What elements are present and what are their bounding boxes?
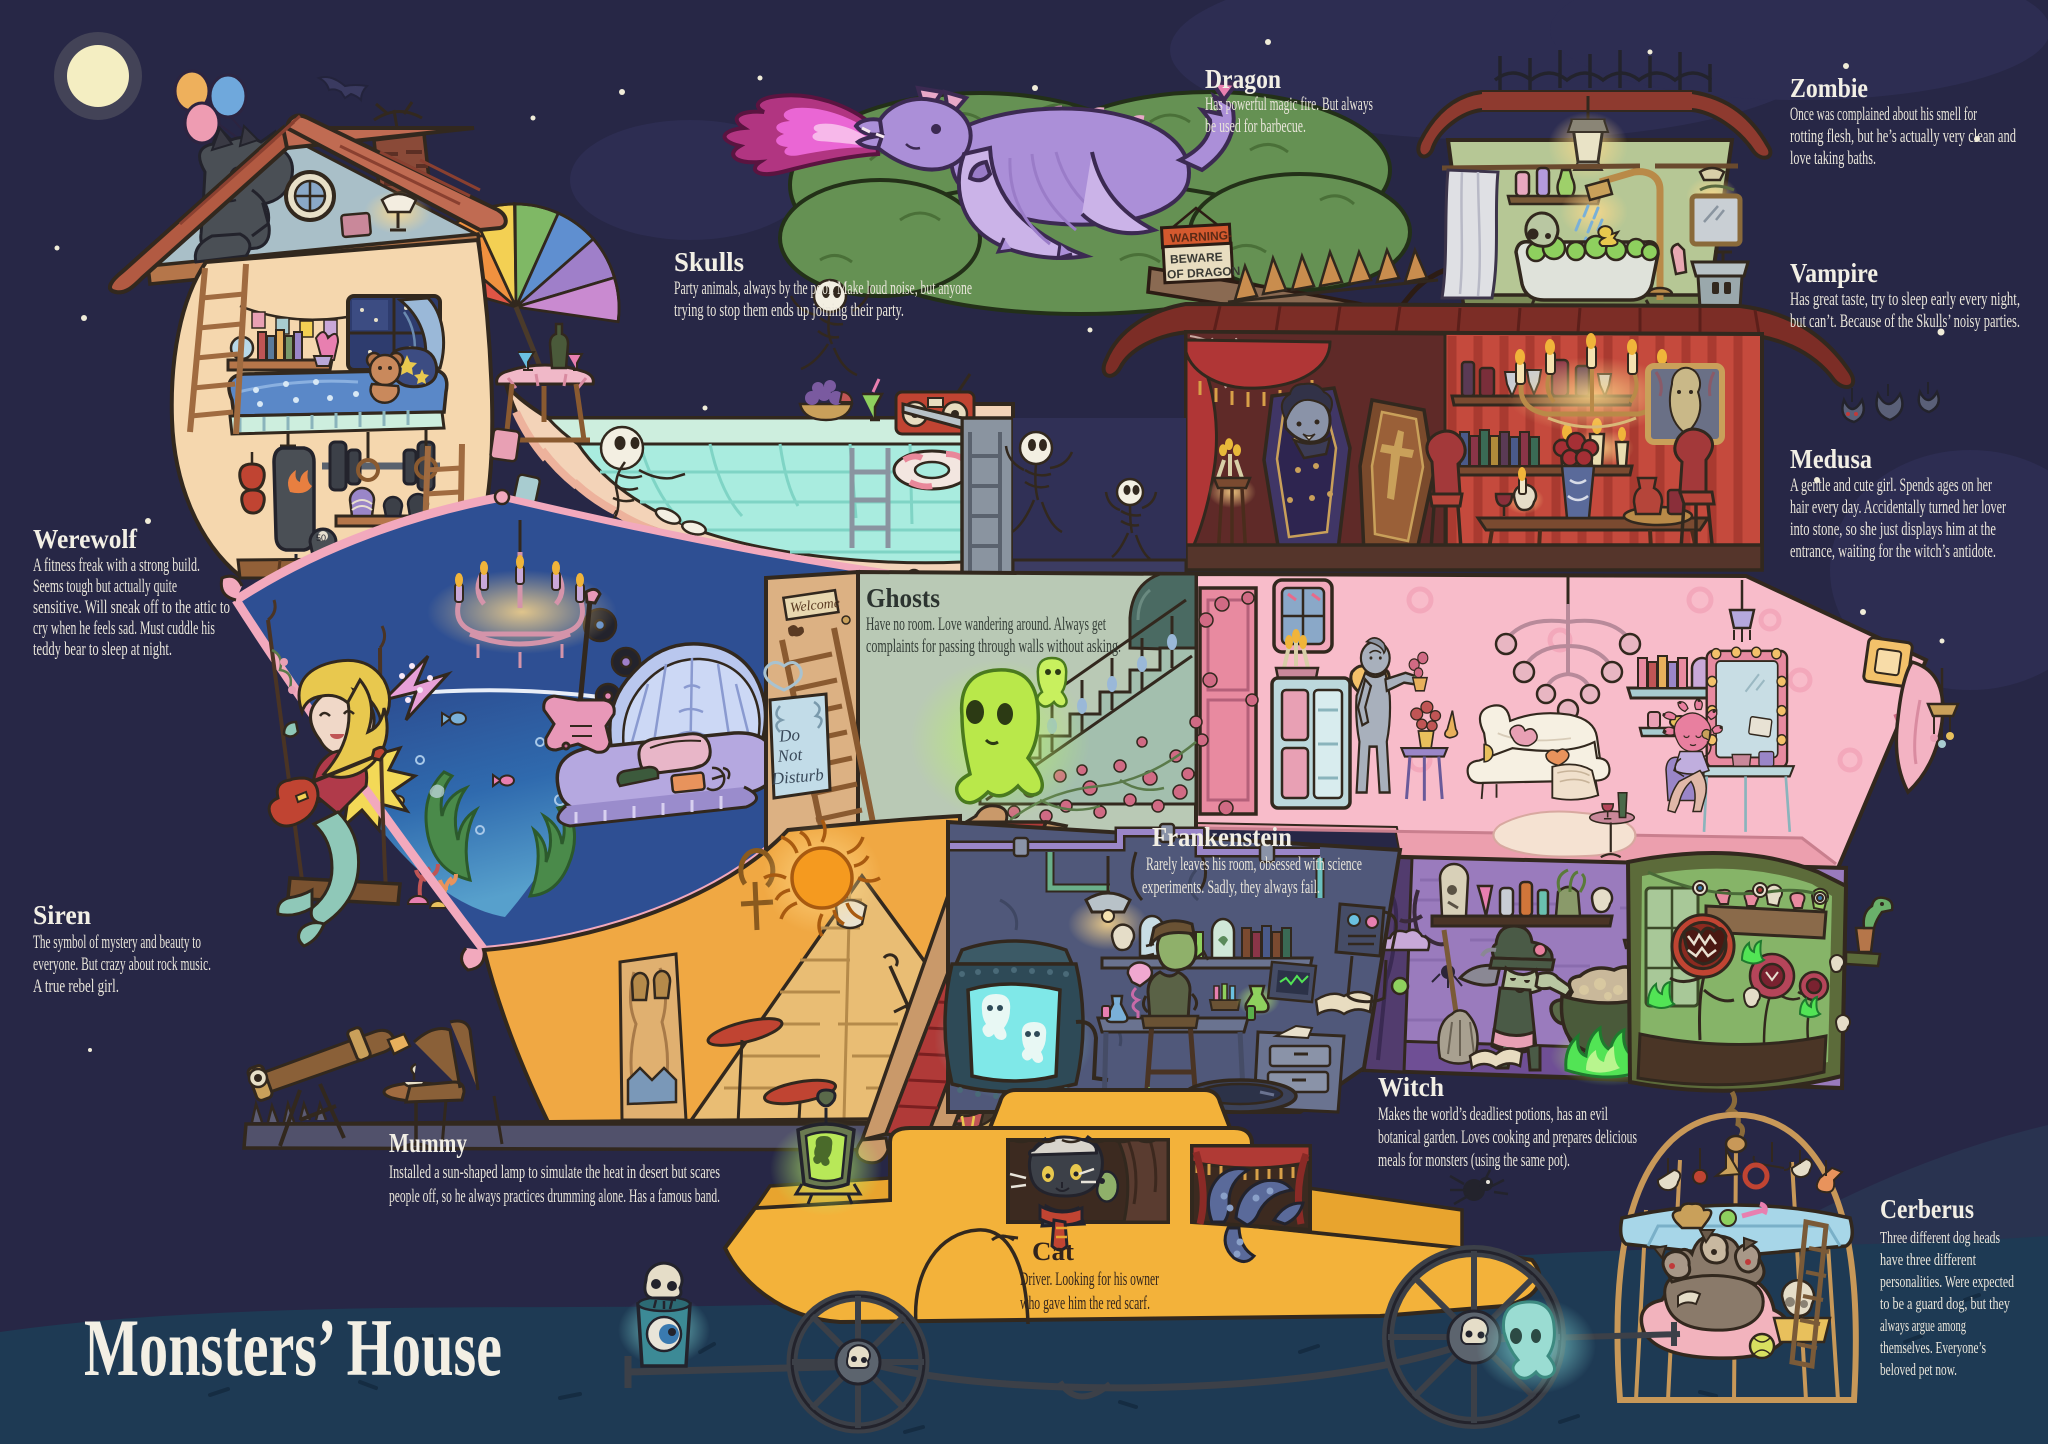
svg-text:personalities. Were expected: personalities. Were expected: [1880, 1272, 2014, 1291]
svg-text:Cerberus: Cerberus: [1880, 1194, 1974, 1224]
svg-text:be used for barbecue.: be used for barbecue.: [1205, 116, 1306, 137]
svg-text:sensitive. Will sneak off to t: sensitive. Will sneak off to the attic t…: [33, 597, 230, 618]
svg-text:Zombie: Zombie: [1790, 73, 1868, 103]
svg-text:Has powerful magic fire. But a: Has powerful magic fire. But always: [1205, 94, 1373, 115]
svg-text:who gave him the red scarf.: who gave him the red scarf.: [1020, 1293, 1150, 1314]
svg-text:Cat: Cat: [1032, 1237, 1074, 1266]
svg-text:BEWARE: BEWARE: [1170, 250, 1223, 267]
svg-text:to be a guard dog, but they: to be a guard dog, but they: [1880, 1294, 2010, 1313]
svg-text:beloved pet now.: beloved pet now.: [1880, 1360, 1957, 1379]
svg-text:Vampire: Vampire: [1790, 258, 1878, 288]
svg-text:entrance, waiting for the witc: entrance, waiting for the witch’s antido…: [1790, 541, 1996, 562]
svg-text:Ghosts: Ghosts: [866, 583, 940, 613]
svg-text:Three different dog heads: Three different dog heads: [1880, 1228, 2000, 1247]
svg-text:Seems tough but actually quite: Seems tough but actually quite: [33, 576, 177, 597]
svg-text:themselves. Everyone’s: themselves. Everyone’s: [1880, 1338, 1986, 1357]
svg-text:teddy bear to sleep at night.: teddy bear to sleep at night.: [33, 639, 172, 660]
svg-text:A gentle and cute girl. Spends: A gentle and cute girl. Spends ages on h…: [1790, 475, 1992, 496]
svg-text:Skulls: Skulls: [674, 247, 744, 277]
svg-text:have three different: have three different: [1880, 1250, 1976, 1269]
svg-text:Party animals, always by the p: Party animals, always by the pool. Make …: [674, 278, 972, 299]
svg-text:Has great taste, try to sleep: Has great taste, try to sleep early ever…: [1790, 289, 2020, 310]
svg-text:Installed a sun-shaped lamp to: Installed a sun-shaped lamp to simulate …: [389, 1162, 720, 1183]
svg-text:Medusa: Medusa: [1790, 444, 1872, 474]
svg-text:everyone. But crazy about rock: everyone. But crazy about rock music.: [33, 954, 211, 975]
svg-text:Driver. Looking for his owner: Driver. Looking for his owner: [1020, 1269, 1159, 1290]
svg-text:Makes the world’s deadliest po: Makes the world’s deadliest potions, has…: [1378, 1104, 1608, 1125]
svg-text:Once was complained about his: Once was complained about his smell for: [1790, 104, 1977, 125]
svg-text:botanical garden. Loves cookin: botanical garden. Loves cooking and prep…: [1378, 1127, 1637, 1148]
svg-text:complaints for passing through: complaints for passing through walls wit…: [866, 636, 1121, 657]
svg-text:Witch: Witch: [1378, 1072, 1444, 1102]
svg-text:Dragon: Dragon: [1205, 64, 1281, 94]
svg-text:50: 50: [316, 533, 326, 543]
svg-text:A true rebel girl.: A true rebel girl.: [33, 976, 119, 997]
svg-text:Do: Do: [777, 725, 800, 746]
svg-text:people off, so he always pract: people off, so he always practices drumm…: [389, 1186, 720, 1207]
svg-text:The symbol of mystery and beau: The symbol of mystery and beauty to: [33, 932, 201, 953]
svg-text:rotting flesh, but he’s actual: rotting flesh, but he’s actually very cl…: [1790, 126, 2016, 147]
svg-text:Not: Not: [776, 745, 804, 766]
svg-text:meals for monsters (using the: meals for monsters (using the same pot).: [1378, 1150, 1570, 1171]
svg-text:Siren: Siren: [33, 900, 91, 930]
svg-text:Monsters’ House: Monsters’ House: [84, 1302, 502, 1393]
svg-text:Rarely leaves his room, obsess: Rarely leaves his room, obsessed with sc…: [1146, 854, 1362, 875]
svg-text:A fitness freak with a strong: A fitness freak with a strong build.: [33, 555, 200, 576]
svg-text:but can’t. Because of the Skul: but can’t. Because of the Skulls’ noisy …: [1790, 311, 2020, 332]
svg-text:experiments. Sadly, they alway: experiments. Sadly, they always fail.: [1142, 877, 1320, 898]
svg-text:Frankenstein: Frankenstein: [1152, 822, 1292, 852]
svg-text:cry when he feels sad. Must cu: cry when he feels sad. Must cuddle his: [33, 618, 215, 639]
svg-text:love taking baths.: love taking baths.: [1790, 148, 1876, 169]
svg-text:into stone, so she just displa: into stone, so she just displays him at …: [1790, 519, 1996, 540]
svg-text:Have no room. Love wandering a: Have no room. Love wandering around. Alw…: [866, 614, 1106, 635]
svg-text:always argue among: always argue among: [1880, 1316, 1966, 1335]
svg-text:Werewolf: Werewolf: [33, 524, 138, 554]
svg-text:hair every day. Accidentally t: hair every day. Accidentally turned her …: [1790, 497, 2006, 518]
svg-text:trying to stop them ends up jo: trying to stop them ends up joining thei…: [674, 300, 904, 321]
svg-text:Mummy: Mummy: [389, 1128, 467, 1158]
